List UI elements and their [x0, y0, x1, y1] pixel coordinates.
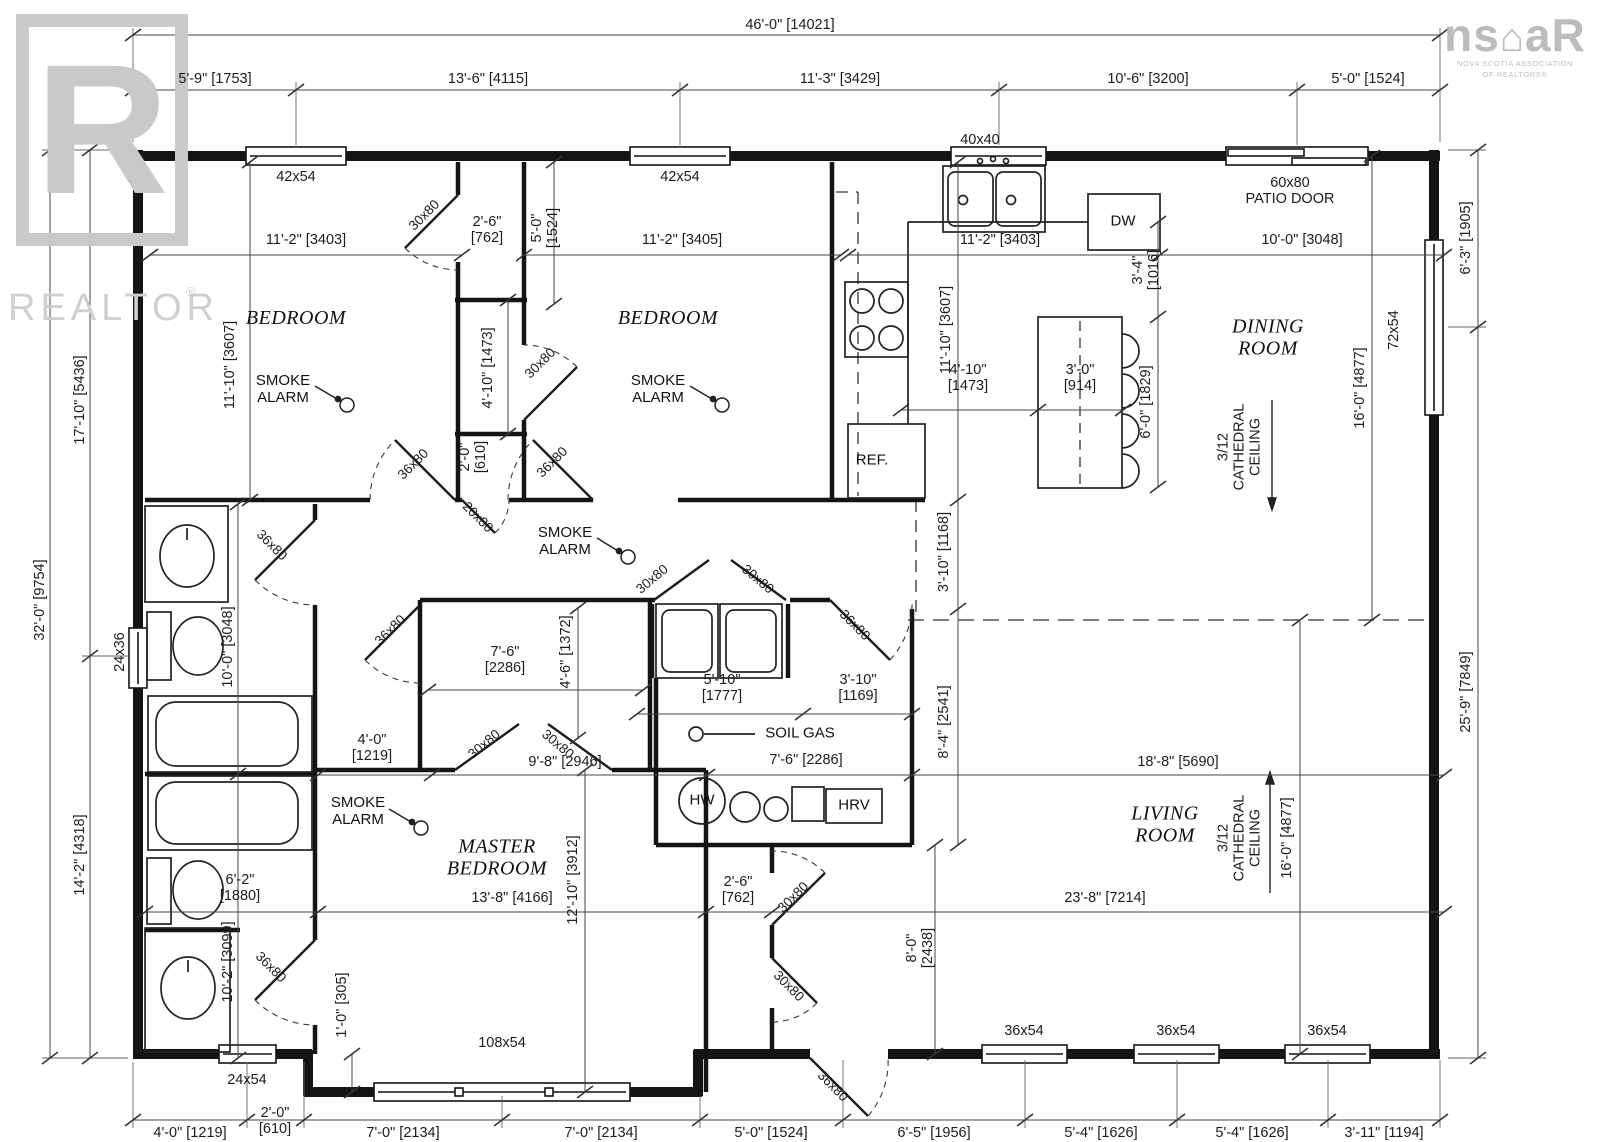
realtor-logo: R: [16, 14, 188, 246]
dim-bottom-3-11: 3'-11" [1194]: [1344, 1125, 1423, 1141]
window-label-24x36: 24x36: [112, 632, 128, 672]
dishwasher-label: DW: [1111, 214, 1136, 231]
dim-4-0-master: 4'-0" [1219]: [352, 732, 392, 764]
window-label-42x54-b: 42x54: [660, 169, 700, 185]
dim-25-9: 25'-9" [7849]: [1458, 651, 1474, 732]
window-label-36x54-a: 36x54: [1004, 1023, 1044, 1039]
window-label-40x40: 40x40: [960, 132, 1000, 148]
patio-door-label: 60x80 PATIO DOOR: [1246, 175, 1335, 207]
dim-4-10-closet: 4'-10" [1473]: [480, 327, 496, 408]
dim-4-6: 4'-6" [1372]: [558, 615, 574, 688]
nsar-logo: ns⌂aR NOVA SCOTIA ASSOCIATIONOF REALTORS…: [1432, 12, 1598, 81]
dim-bottom-2-0: 2'-0" [610]: [259, 1105, 291, 1137]
dim-2-6-closet: 2'-6" [762]: [471, 214, 503, 246]
dim-9-8: 9'-8" [2946]: [528, 754, 601, 770]
dim-2-0-closet: 2'-0" [610]: [457, 441, 489, 473]
registered-icon: ®: [186, 284, 196, 299]
dim-16-0-dining: 16'-0" [4877]: [1352, 347, 1368, 428]
soil-gas-label: SOIL GAS: [765, 726, 834, 743]
house-icon: ⌂: [1500, 16, 1525, 60]
nsar-subtitle-line2: OF REALTORS®: [1483, 70, 1548, 79]
dim-bottom-6-5: 6'-5" [1956]: [897, 1125, 970, 1141]
dim-4-10-kitchen: 4'-10" [1473]: [948, 362, 988, 394]
floor-plan-drawing: [0, 0, 1600, 1142]
dim-5-0-top: 5'-0" [1524]: [1331, 71, 1404, 87]
nsar-ar: aR: [1525, 9, 1586, 61]
dim-23-8: 23'-8" [7214]: [1064, 890, 1145, 906]
dim-11-2-kitchen: 11'-2" [3403]: [960, 232, 1040, 248]
room-living: LIVING ROOM: [1131, 803, 1198, 848]
dim-5-9: 5'-9" [1753]: [178, 71, 251, 87]
dim-11-2-bed1: 11'-2" [3403]: [266, 232, 346, 248]
window-label-42x54-a: 42x54: [276, 169, 316, 185]
dim-10-0-dining: 10'-0" [3048]: [1261, 232, 1342, 248]
floor-plan-page: R REALTOR ® ns⌂aR NOVA SCOTIA ASSOCIATIO…: [0, 0, 1600, 1142]
dim-7-6-utility: 7'-6" [2286]: [769, 752, 842, 768]
dim-3-10-laundry: 3'-10" [1169]: [838, 672, 877, 704]
dim-5-0-closet: 5'-0" [1524]: [529, 208, 561, 248]
smoke-alarm-label-3: SMOKE ALARM: [538, 525, 592, 559]
dim-13-6: 13'-6" [4115]: [448, 71, 528, 87]
dim-11-3: 11'-3" [3429]: [800, 71, 880, 87]
window-label-36x54-b: 36x54: [1156, 1023, 1196, 1039]
room-bedroom-1: BEDROOM: [246, 307, 346, 329]
dim-32-0: 32'-0" [9754]: [32, 559, 48, 640]
nsar-ns: ns: [1444, 9, 1500, 61]
dim-bottom-7-0-a: 7'-0" [2134]: [366, 1125, 439, 1141]
realtor-logo-letter: R: [35, 47, 169, 214]
window-label-24x54: 24x54: [227, 1072, 267, 1088]
window-label-36x54-c: 36x54: [1307, 1023, 1347, 1039]
dim-bottom-5-0: 5'-0" [1524]: [734, 1125, 807, 1141]
room-master: MASTER BEDROOM: [447, 836, 547, 881]
dim-8-4: 8'-4" [2541]: [936, 685, 952, 758]
fridge-label: REF.: [856, 453, 889, 470]
dim-13-8: 13'-8" [4166]: [471, 890, 552, 906]
dim-2-6-hall: 2'-6" [762]: [722, 874, 754, 906]
dim-16-0-living: 16'-0" [4877]: [1279, 797, 1295, 878]
dim-5-10: 5'-10" [1777]: [702, 672, 742, 704]
dim-overall-width: 46'-0" [14021]: [745, 17, 834, 33]
cathedral-ceiling-arrows: [1266, 400, 1276, 893]
dim-3-0-island: 3'-0" [914]: [1064, 362, 1096, 394]
dim-6-0: 6'-0" [1829]: [1138, 365, 1154, 438]
room-bedroom-2: BEDROOM: [618, 307, 718, 329]
dim-18-8: 18'-8" [5690]: [1137, 754, 1218, 770]
dim-6-2: 6'-2" [1880]: [220, 872, 260, 904]
dim-6-3: 6'-3" [1905]: [1458, 201, 1474, 274]
smoke-alarm-label-2: SMOKE ALARM: [631, 373, 685, 407]
dim-11-10-bed1: 11'-10" [3607]: [222, 321, 238, 409]
cathedral-ceiling-dining: 3/12 CATHEDRAL CEILING: [1216, 404, 1265, 491]
dim-10-2: 10'-2" [3099]: [220, 921, 236, 1002]
nsar-subtitle-line1: NOVA SCOTIA ASSOCIATION: [1457, 59, 1573, 68]
dim-1-0: 1'-0" [305]: [334, 972, 350, 1037]
hrv-label: HRV: [838, 798, 869, 815]
dim-bottom-4-0: 4'-0" [1219]: [153, 1125, 226, 1141]
dim-3-4: 3'-4" [1016]: [1130, 250, 1162, 290]
dim-10-6: 10'-6" [3200]: [1107, 71, 1188, 87]
dim-12-10: 12'-10" [3912]: [565, 835, 581, 924]
nsar-subtitle: NOVA SCOTIA ASSOCIATIONOF REALTORS®: [1432, 58, 1598, 81]
window-label-72x54: 72x54: [1386, 310, 1402, 350]
dim-10-0-bath: 10'-0" [3048]: [220, 606, 236, 687]
window-label-108x54: 108x54: [478, 1035, 526, 1051]
door-swing-arcs: [255, 248, 912, 1116]
smoke-alarm-label-1: SMOKE ALARM: [256, 373, 310, 407]
cathedral-ceiling-living: 3/12 CATHEDRAL CEILING: [1216, 795, 1265, 882]
dim-8-0: 8'-0" [2438]: [904, 928, 936, 968]
smoke-alarm-label-4: SMOKE ALARM: [331, 795, 385, 829]
dim-11-2-bed2: 11'-2" [3405]: [642, 232, 722, 248]
dim-14-2: 14'-2" [4318]: [72, 814, 88, 895]
dim-3-10-pass: 3'-10" [1168]: [936, 512, 952, 592]
hot-water-label: HW: [690, 793, 715, 810]
dim-17-10: 17'-10" [5436]: [72, 355, 88, 444]
dim-bottom-5-4-a: 5'-4" [1626]: [1064, 1125, 1137, 1141]
dim-bottom-7-0-b: 7'-0" [2134]: [564, 1125, 637, 1141]
nsar-wordmark: ns⌂aR: [1432, 12, 1598, 58]
dim-7-6-closet: 7'-6" [2286]: [485, 644, 525, 676]
dim-bottom-5-4-b: 5'-4" [1626]: [1215, 1125, 1288, 1141]
room-dining: DINING ROOM: [1232, 316, 1304, 361]
